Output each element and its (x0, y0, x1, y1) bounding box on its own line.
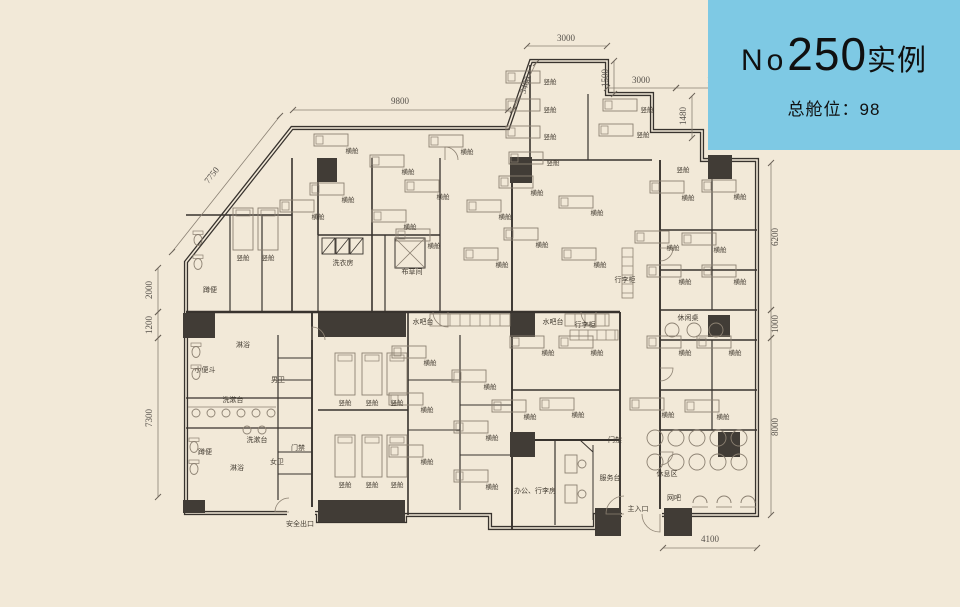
area-label: 蹲便 (203, 285, 217, 294)
floor-plan-page: 3000150030001905148098003480775020001200… (0, 0, 960, 607)
area-label: 服务台 (600, 473, 621, 482)
capsule-room-label: 竖舱 (677, 165, 691, 174)
dimension-label: 9800 (391, 96, 410, 106)
area-label: 休息区 (657, 469, 678, 478)
area-label: 女卫 (270, 457, 284, 466)
capacity-text: 总舱位：98 (788, 95, 881, 120)
capsule-room-label: 横舱 (717, 412, 731, 421)
area-label: 主入口 (628, 504, 649, 513)
dimension-label: 8000 (770, 418, 780, 437)
capsule-room-label: 横舱 (662, 410, 676, 419)
capsule-room-label: 竖舱 (366, 480, 380, 489)
capsule-room-label: 横舱 (437, 192, 451, 201)
capsule-room-label: 横舱 (421, 457, 435, 466)
capsule-room-label: 横舱 (421, 405, 435, 414)
capsule-room-label: 横舱 (346, 146, 360, 155)
capsule-room-label: 横舱 (496, 260, 510, 269)
capsule-room-label: 横舱 (667, 243, 681, 252)
column (708, 155, 732, 179)
capsule-room-label: 竖舱 (544, 77, 558, 86)
area-label: 网吧 (667, 494, 681, 502)
dimension-label: 2000 (144, 281, 154, 300)
area-label: 蹲便 (198, 447, 212, 456)
area-label: 行李柜 (615, 275, 636, 284)
capsule-room-label: 竖舱 (262, 253, 276, 262)
capsule-room-label: 竖舱 (391, 480, 405, 489)
dimension-label: 1200 (144, 316, 154, 335)
capsule-room-label: 横舱 (342, 195, 356, 204)
capsule-room-label: 竖舱 (637, 130, 651, 139)
capsule-room-label: 横舱 (682, 193, 696, 202)
door-swing (275, 498, 289, 512)
capsule-room-label: 竖舱 (547, 158, 561, 167)
dimension-label: 1000 (770, 315, 780, 334)
dimension-label: 3000 (557, 33, 576, 43)
capsule-room-label: 横舱 (542, 348, 556, 357)
area-label: 男卫 (271, 376, 285, 384)
area-label: 门禁 (608, 435, 622, 444)
capsule-room-label: 横舱 (312, 212, 326, 221)
capsule-room-label: 横舱 (402, 167, 416, 176)
door-swing (660, 368, 673, 381)
dimension-tick (169, 249, 175, 255)
column (510, 313, 535, 337)
area-label: 淋浴 (230, 463, 244, 472)
info-panel: No250实例 总舱位：98 (708, 0, 960, 150)
column (317, 158, 337, 182)
area-label: 水吧台 (413, 317, 434, 326)
area-label: 办公、行李房 (514, 486, 556, 495)
capsule-room-label: 横舱 (486, 433, 500, 442)
capsule-room-label: 竖舱 (391, 398, 405, 407)
dimension-label: 4100 (701, 534, 720, 544)
dimension-label: 7750 (202, 165, 221, 186)
capsule-room-label: 横舱 (536, 240, 550, 249)
capsule-room-label: 横舱 (734, 192, 748, 201)
capsule-room-label: 横舱 (591, 208, 605, 217)
capsule-room-label: 横舱 (679, 348, 693, 357)
dimension-line (172, 116, 280, 252)
capsule-room-label: 横舱 (404, 222, 418, 231)
column (595, 508, 621, 536)
plan-number: 250 (787, 28, 867, 80)
capsule-room-label: 横舱 (734, 277, 748, 286)
capsule-room-label: 横舱 (499, 212, 513, 221)
capsule-room-label: 横舱 (572, 410, 586, 419)
area-label: 水吧台 (543, 317, 564, 326)
column (664, 508, 692, 536)
column (708, 315, 730, 337)
area-label: 门禁 (291, 443, 305, 452)
dimension-label: 6200 (770, 228, 780, 247)
area-label: 布草间 (402, 267, 423, 276)
dimension-label: 7300 (144, 409, 154, 428)
column (318, 500, 405, 522)
capsule-room-label: 竖舱 (339, 398, 353, 407)
plan-title-suffix: 实例 (867, 45, 927, 77)
capsule-room-label: 横舱 (428, 241, 442, 250)
capsule-room-label: 竖舱 (641, 105, 655, 114)
area-label: 洗漱台 (247, 435, 268, 444)
plan-title: No250实例 (741, 31, 927, 77)
plan-number-prefix: No (741, 44, 787, 77)
capsule-room-label: 横舱 (679, 277, 693, 286)
capsule-room-label: 横舱 (424, 358, 438, 367)
column (510, 432, 535, 457)
capsule-room-label: 横舱 (531, 188, 545, 197)
capsule-room-label: 横舱 (729, 348, 743, 357)
capsule-room-label: 竖舱 (339, 480, 353, 489)
dimension-label: 1500 (600, 69, 610, 88)
area-label: 淋浴 (236, 340, 250, 349)
door-swing (445, 147, 458, 160)
capsule-room-label: 竖舱 (237, 253, 251, 262)
capsule-room-label: 横舱 (524, 412, 538, 421)
column (183, 500, 205, 513)
area-label: 安全出口 (286, 519, 314, 528)
capsule-room-label: 横舱 (461, 147, 475, 156)
capsule-room-label: 横舱 (594, 260, 608, 269)
dimension-annotations: 3000150030001905148098003480775020001200… (144, 33, 780, 551)
area-label: 小便斗 (195, 365, 216, 374)
wall-segment (580, 440, 593, 452)
dimension-label: 3000 (632, 75, 651, 85)
capsule-room-label: 横舱 (591, 348, 605, 357)
capsule-room-label: 竖舱 (544, 105, 558, 114)
capsule-room-label: 竖舱 (544, 132, 558, 141)
column (183, 313, 215, 338)
column (510, 157, 532, 183)
dimension-label: 1480 (678, 107, 688, 126)
dimension-tick (277, 113, 283, 119)
capsule-room-label: 竖舱 (366, 398, 380, 407)
column (718, 432, 740, 457)
capsule-room-label: 横舱 (714, 245, 728, 254)
area-label: 洗漱台 (223, 395, 244, 404)
area-label: 行李柜 (575, 320, 596, 329)
structural-columns (183, 155, 740, 536)
capsule-room-label: 横舱 (484, 382, 498, 391)
column (318, 313, 406, 337)
area-label: 休闲桌 (678, 313, 699, 322)
capsule-room-label: 横舱 (486, 482, 500, 491)
area-label: 洗衣房 (333, 258, 354, 267)
